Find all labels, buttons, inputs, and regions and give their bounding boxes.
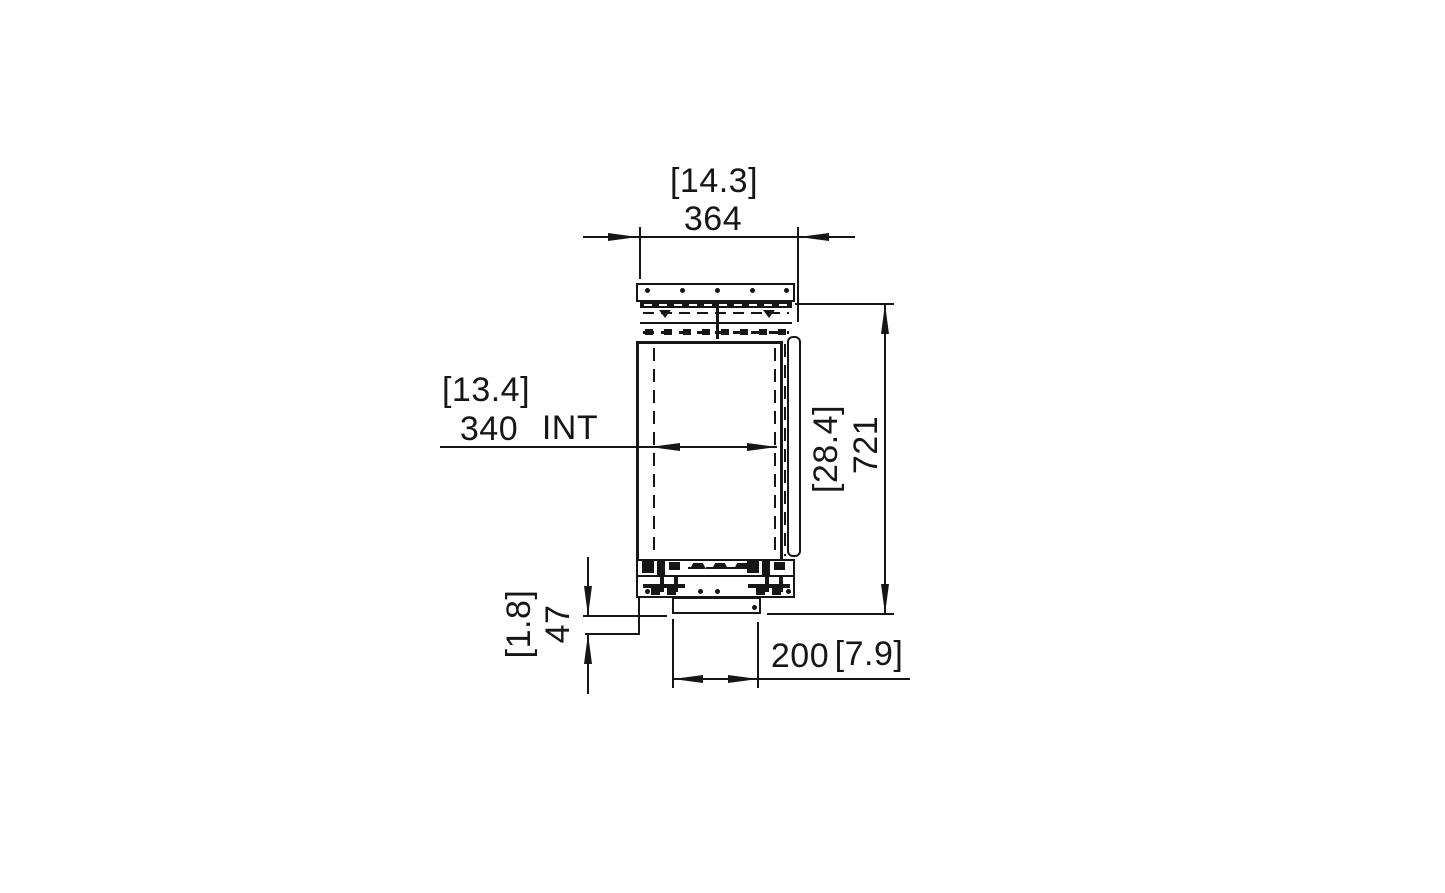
internal-width-arrowhead-left: [650, 443, 680, 451]
hidden-inner-wall-left: [653, 348, 655, 554]
hidden-inner-wall-right: [774, 348, 776, 554]
base-drop-metric-label: 47: [541, 605, 575, 644]
overall-width-extension-line-right: [797, 227, 799, 322]
fastener-mark: [778, 329, 786, 335]
fastener-mark: [759, 329, 767, 335]
internal-width-dim-line: [440, 446, 777, 448]
base-rivet-dot: [698, 589, 703, 594]
base-drop-extension-line-top: [583, 615, 667, 617]
valve-foot: [667, 588, 676, 595]
base-rivet-dot: [786, 589, 791, 594]
overall-height-extension-line-top: [795, 303, 894, 305]
tray-width-arrowhead-right: [728, 675, 758, 683]
base-drop-arrowhead-up: [584, 634, 592, 664]
fastener-mark: [740, 329, 748, 335]
screw-hole-dot: [715, 288, 720, 293]
valve-bar: [748, 584, 790, 588]
overall-height-metric-label: 721: [849, 416, 883, 474]
screw-hole-dot: [750, 288, 755, 293]
base-drop-imperial-label: [1.8]: [502, 590, 536, 659]
overall-width-arrowhead-right: [799, 233, 829, 241]
side-panel: [787, 336, 801, 557]
fastener-mark: [702, 329, 710, 335]
base-drop-arrowhead-down: [584, 586, 592, 616]
base-rivet-dot: [715, 589, 720, 594]
overall-width-imperial-label: [14.3]: [670, 164, 758, 198]
valve-foot: [756, 588, 765, 595]
tray-width-imperial-label: [7.9]: [835, 637, 904, 671]
overall-width-metric-label: 364: [684, 202, 742, 236]
valve-foot: [772, 588, 781, 595]
base-rivet-dot: [645, 589, 650, 594]
locator-triangle-left: [659, 310, 671, 318]
internal-width-arrowhead-right: [747, 443, 777, 451]
bracket-block: [642, 560, 654, 573]
valve-foot: [651, 588, 660, 595]
locator-triangle-right: [763, 310, 775, 318]
overall-height-extension-line-bottom: [767, 613, 894, 615]
bracket-block: [762, 560, 770, 575]
base-drop-extension-line-bottom: [585, 633, 640, 635]
drain-box: [672, 597, 761, 614]
internal-width-imperial-label: [13.4]: [442, 373, 530, 407]
overall-height-arrowhead-bottom: [881, 584, 889, 614]
internal-width-note-label: INT: [542, 411, 598, 445]
fastener-mark: [683, 329, 691, 335]
technical-drawing-canvas: [14.3] 364: [0, 0, 1445, 893]
fastener-mark: [645, 329, 653, 335]
tray-width-dim-line: [673, 678, 910, 680]
bracket-block: [747, 560, 759, 573]
overall-width-arrowhead-left: [608, 233, 638, 241]
screw-hole-dot: [784, 288, 789, 293]
fastener-mark: [664, 329, 672, 335]
tray-width-metric-label: 200: [771, 639, 829, 673]
overall-height-imperial-label: [28.4]: [809, 405, 843, 493]
bracket-block: [669, 562, 680, 570]
tray-width-arrowhead-left: [673, 675, 703, 683]
bracket-block: [657, 560, 665, 575]
overall-width-extension-line-left: [639, 227, 641, 279]
screw-hole-dot: [645, 288, 650, 293]
hidden-edge-right: [784, 344, 786, 556]
overall-height-arrowhead-top: [881, 304, 889, 334]
internal-width-metric-label: 340: [460, 412, 518, 446]
drain-fitting-dot: [752, 605, 757, 610]
fastener-mark: [721, 329, 729, 335]
valve-bar: [643, 584, 685, 588]
screw-hole-dot: [680, 288, 685, 293]
bracket-block: [774, 562, 785, 570]
